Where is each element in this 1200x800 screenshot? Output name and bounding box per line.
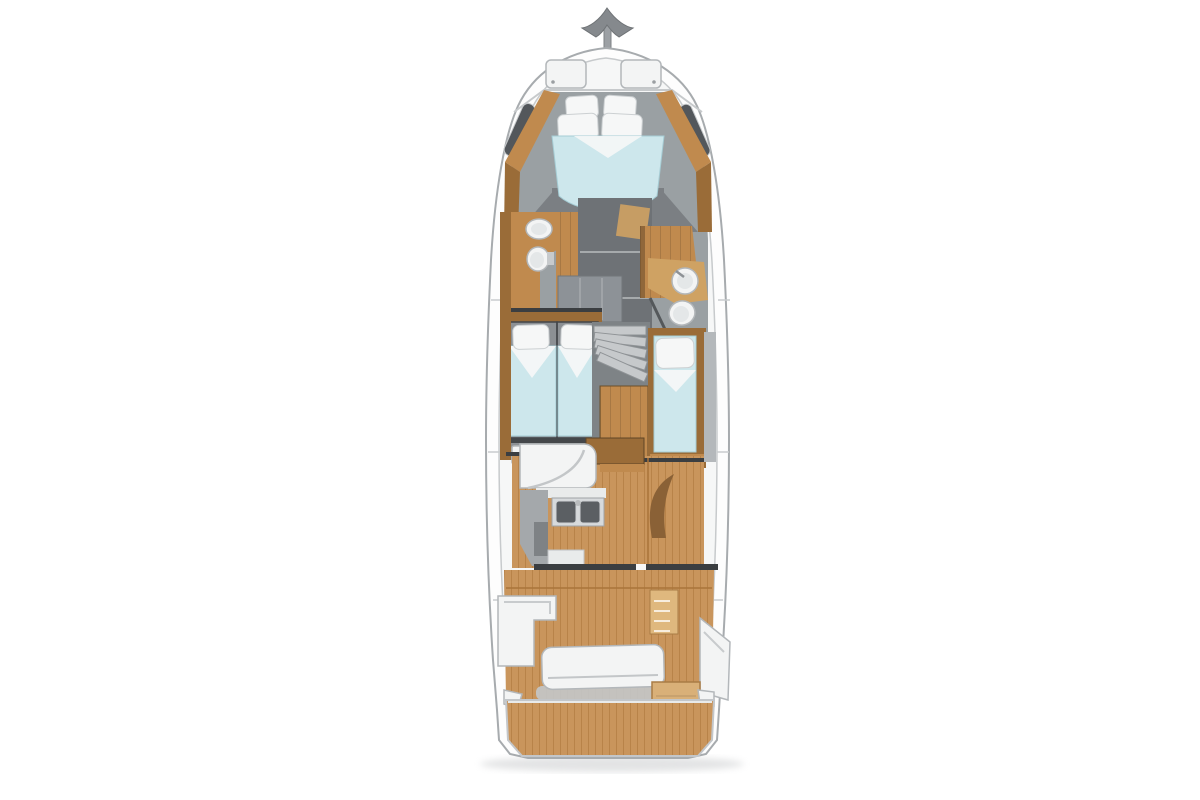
bulkhead-door-gap bbox=[636, 564, 646, 570]
sink-basin-left bbox=[556, 501, 576, 523]
cabin-bulkhead bbox=[506, 308, 602, 312]
saloon-bulkhead-right bbox=[640, 458, 704, 462]
headboard-rail bbox=[506, 312, 602, 322]
cockpit-bench bbox=[541, 644, 664, 689]
starboard-side-step bbox=[700, 618, 730, 700]
toilet-tank bbox=[547, 252, 554, 265]
yacht-deck-plan-canvas: Motor yacht interior layout, overhead de… bbox=[0, 0, 1200, 800]
hatch-hinge-dot bbox=[551, 80, 555, 84]
cockpit-bulkhead bbox=[534, 564, 718, 570]
sink-basin-right bbox=[580, 501, 600, 523]
saloon bbox=[506, 438, 718, 572]
starboard-guest-cabin bbox=[648, 328, 716, 468]
hatch-hinge-dot bbox=[652, 80, 656, 84]
pillow bbox=[561, 324, 596, 349]
pillow bbox=[513, 324, 550, 349]
pillow bbox=[655, 337, 694, 368]
toilet-bowl bbox=[530, 252, 544, 268]
foredeck-hatch-right bbox=[621, 60, 661, 88]
sink-basin bbox=[531, 223, 547, 235]
closet-edge bbox=[640, 226, 645, 298]
deck-plan-drawing: Motor yacht interior layout, overhead de… bbox=[0, 0, 1200, 800]
cabinet-step bbox=[600, 464, 644, 472]
faucet bbox=[575, 500, 581, 506]
appliance bbox=[534, 522, 548, 556]
side-wedge-right bbox=[696, 162, 712, 232]
swim-platform-teak bbox=[506, 700, 714, 756]
port-hull-liner bbox=[500, 212, 511, 460]
swim-platform bbox=[506, 700, 714, 756]
foredeck-hatch-left bbox=[546, 60, 586, 88]
starboard-side-shelf bbox=[704, 332, 716, 462]
sink-basin bbox=[677, 273, 693, 289]
toilet-bowl bbox=[673, 306, 689, 322]
